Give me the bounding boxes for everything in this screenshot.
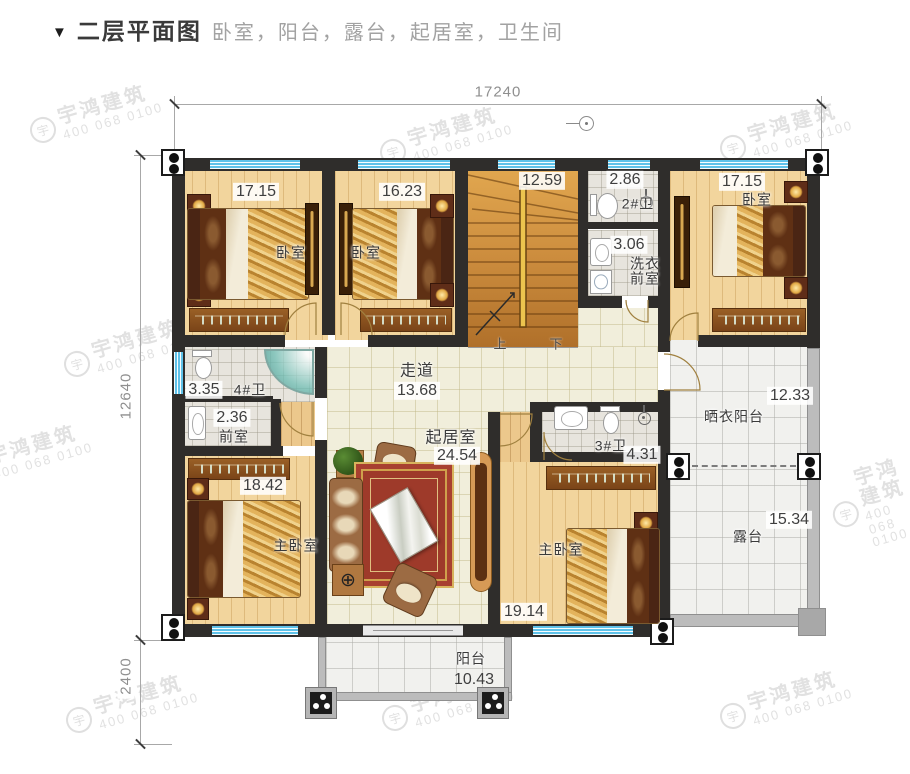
- bath4-name: 4#卫: [234, 382, 267, 399]
- bedroom-a-area: 17.15: [233, 183, 279, 201]
- wall-exterior-left: [172, 158, 185, 640]
- laundry-name-2: 前室: [630, 271, 660, 288]
- wall-bath2-bedroom-c: [658, 171, 670, 335]
- wardrobe: [712, 308, 806, 332]
- page-title: ▼ 二层平面图 卧室，阳台，露台，起居室，卫生间: [52, 12, 564, 46]
- shower-head-icon: [638, 412, 651, 425]
- balcony-column-left: [306, 688, 336, 718]
- wall-bath2-laundry: [588, 222, 658, 229]
- living-room-name: 起居室: [425, 428, 476, 447]
- corridor-area: 13.68: [394, 382, 440, 400]
- master-right-name: 主卧室: [539, 542, 584, 559]
- tv-cabinet: [470, 452, 492, 592]
- nightstand: [430, 283, 454, 307]
- benchmark-icon: [579, 116, 594, 131]
- stairs-area: 12.59: [519, 172, 565, 190]
- nightstand: [784, 181, 808, 203]
- stairs-drawing: [468, 165, 578, 347]
- window-left: [174, 352, 183, 394]
- wardrobe: [546, 466, 656, 490]
- plan-title: 二层平面图: [77, 12, 202, 46]
- corridor-name: 走道: [400, 361, 434, 380]
- terrace-railing-bottom: [670, 614, 807, 627]
- living-room-area: 24.54: [434, 447, 480, 465]
- wall-row1-bottom-mid: [368, 335, 455, 347]
- dimension-left-lower: 2400: [118, 653, 135, 698]
- column-marker: [797, 453, 821, 480]
- top-dimension-line: [174, 104, 822, 105]
- watermark-phone: 400 068 0100: [97, 690, 200, 732]
- bedroom-b-area: 16.23: [379, 183, 425, 201]
- wall-laundry-bottom-2: [648, 296, 670, 308]
- watermark-logo-icon: 宇: [379, 702, 411, 734]
- window-top-3: [498, 160, 555, 169]
- balcony-sliding-door: [363, 625, 463, 636]
- double-bed: [712, 205, 806, 277]
- wall-row1-bottom-left: [172, 335, 285, 347]
- wall-bedroom-a-b: [322, 171, 335, 335]
- wardrobe: [360, 308, 452, 332]
- toilet: [597, 193, 618, 219]
- bedroom-b-name: 卧室: [351, 245, 381, 262]
- side-table: ⊕: [332, 564, 364, 596]
- watermark-phone: 400 068 0100: [863, 497, 910, 549]
- bath3-area: 4.31: [623, 446, 660, 464]
- watermark-phone: 400 068 0100: [0, 440, 95, 482]
- washing-machine: [590, 270, 612, 294]
- watermark: 宇 宇鸿建筑400 068 0100: [0, 420, 95, 490]
- toilet-tank: [590, 194, 597, 216]
- watermark-phone: 400 068 0100: [61, 100, 164, 142]
- watermark: 宇 宇鸿建筑400 068 0100: [822, 457, 910, 558]
- watermark-logo-icon: 宇: [830, 499, 862, 531]
- watermark-phone: 400 068 0100: [751, 686, 854, 728]
- watermark-brand: 宇鸿建筑: [746, 98, 851, 147]
- toilet: [195, 357, 212, 379]
- stairs-up-label: 上: [493, 334, 506, 353]
- window-top-1: [210, 160, 300, 169]
- wall-bedroom-c-bottom: [698, 335, 807, 347]
- watermark-phone: 400 068 0100: [751, 118, 854, 160]
- corridor-floor-upper: [578, 308, 670, 347]
- watermark-logo-icon: 宇: [27, 114, 59, 146]
- window-top-2: [358, 160, 450, 169]
- wardrobe: [189, 308, 289, 332]
- wall-laundry-bottom-1: [578, 296, 622, 308]
- dimension-left-height: 12640: [118, 369, 135, 424]
- master-left-name: 主卧室: [274, 538, 319, 555]
- nightstand: [430, 194, 454, 218]
- bedroom-a-name: 卧室: [276, 245, 306, 262]
- watermark-brand: 宇鸿建筑: [56, 80, 161, 129]
- window-bottom-1: [212, 626, 298, 635]
- wall-bath3-left: [530, 402, 542, 462]
- left-dimension-line: [140, 155, 141, 745]
- wall-exterior-right: [807, 158, 820, 348]
- anteroom-name: 前室: [219, 429, 249, 446]
- watermark-logo-icon: 宇: [63, 704, 95, 736]
- wall-master-left-top: [172, 446, 283, 456]
- column-marker: [161, 149, 185, 176]
- bath2-name: 2#卫: [622, 196, 655, 213]
- triangle-marker-icon: ▼: [52, 24, 67, 41]
- wall-right-upper-stub: [658, 335, 670, 352]
- watermark-brand: 宇鸿建筑: [0, 420, 91, 469]
- balcony-name: 阳台: [456, 651, 486, 668]
- watermark-brand: 宇鸿建筑: [852, 457, 909, 510]
- sofa: [329, 478, 363, 572]
- column-marker: [805, 149, 829, 176]
- terrace-division-dashed-line: [692, 465, 796, 467]
- watermark: 宇 宇鸿建筑400 068 0100: [26, 80, 165, 150]
- watermark-logo-icon: 宇: [61, 348, 93, 380]
- bath4-area: 3.35: [185, 381, 222, 399]
- bath3-name: 3#卫: [595, 438, 628, 455]
- stairs-down-label: 下: [549, 334, 562, 353]
- window-bottom-2: [533, 626, 633, 635]
- column-marker: [161, 614, 185, 641]
- dresser: [305, 203, 319, 295]
- bath2-area: 2.86: [606, 171, 643, 189]
- laundry-area: 3.06: [610, 236, 647, 254]
- wall-stairs-bath2: [578, 171, 588, 296]
- watermark-logo-icon: 宇: [717, 700, 749, 732]
- toilet: [603, 412, 619, 434]
- nightstand: [187, 478, 209, 500]
- master-right-area: 19.14: [501, 603, 547, 621]
- bedroom-c-area: 17.15: [719, 173, 765, 191]
- watermark-brand: 宇鸿建筑: [406, 102, 511, 151]
- floor-plan-page: ▼ 二层平面图 卧室，阳台，露台，起居室，卫生间 宇 宇鸿建筑400 068 0…: [0, 0, 910, 774]
- wall-left-center-upper: [315, 347, 327, 398]
- balcony-column-right: [478, 688, 508, 718]
- watermark-brand: 宇鸿建筑: [746, 666, 851, 715]
- watermark: 宇 宇鸿建筑400 068 0100: [716, 666, 855, 736]
- master-left-entry-floor: [281, 402, 315, 446]
- laundry-sink: [590, 238, 612, 266]
- terrace-corner-column: [798, 608, 826, 636]
- vanity-sink: [188, 406, 206, 440]
- anteroom-area: 2.36: [213, 409, 250, 427]
- nightstand: [784, 277, 808, 299]
- bedroom-c-name: 卧室: [742, 192, 772, 209]
- drying-balcony-name: 晒衣阳台: [704, 409, 764, 426]
- wall-left-center-lower: [315, 440, 327, 627]
- wall-bedroom-b-stairs: [455, 171, 468, 347]
- window-top-4: [608, 160, 650, 169]
- nightstand: [187, 598, 209, 620]
- watermark-brand: 宇鸿建筑: [92, 670, 197, 719]
- wall-anteroom-entry: [271, 399, 281, 446]
- dimension-top-width: 17240: [471, 84, 526, 101]
- bathroom-sink: [554, 406, 588, 430]
- plan-subtitle: 卧室，阳台，露台，起居室，卫生间: [212, 16, 564, 45]
- drying-balcony-area: 12.33: [767, 387, 813, 405]
- window-top-5: [700, 160, 788, 169]
- dresser: [674, 196, 690, 288]
- column-marker: [666, 453, 690, 480]
- terrace-area: 15.34: [766, 511, 812, 529]
- master-left-area: 18.42: [240, 477, 286, 495]
- terrace-name: 露台: [733, 529, 763, 546]
- toilet-tank: [192, 350, 212, 357]
- balcony-area: 10.43: [451, 671, 497, 689]
